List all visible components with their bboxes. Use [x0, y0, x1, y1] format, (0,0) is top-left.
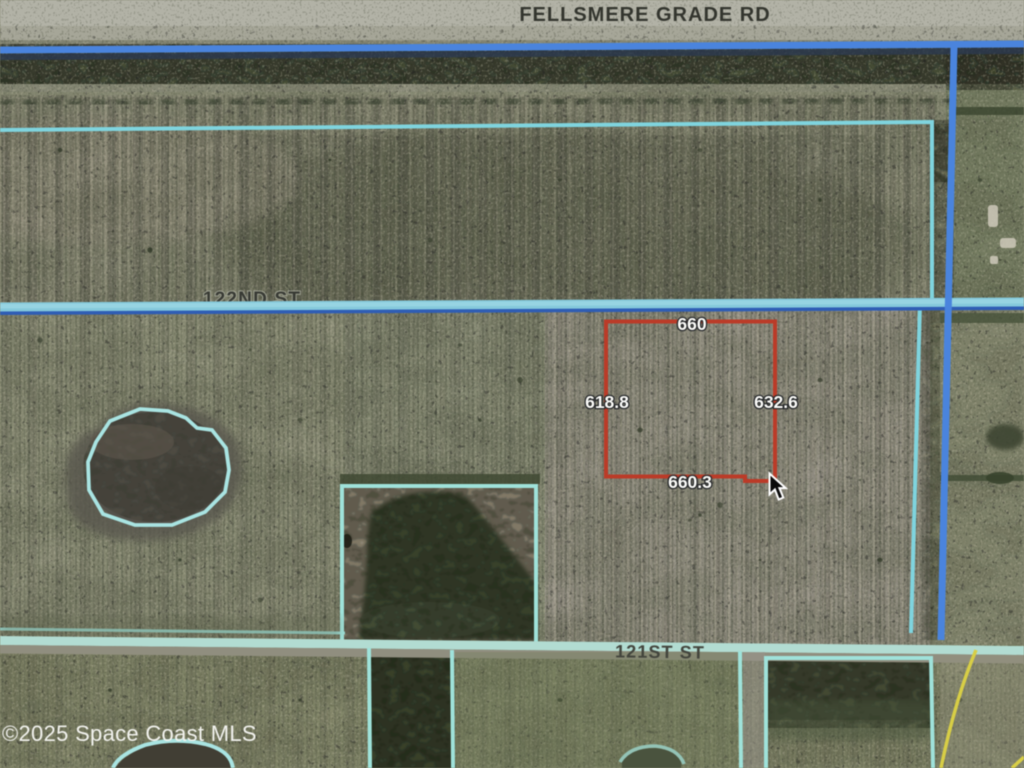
svg-text:FELLSMERE GRADE RD: FELLSMERE GRADE RD [519, 4, 770, 26]
svg-text:618.8: 618.8 [585, 392, 629, 412]
svg-text:660.3: 660.3 [668, 472, 712, 492]
svg-text:632.6: 632.6 [754, 392, 798, 412]
svg-text:121ST ST: 121ST ST [615, 641, 705, 662]
svg-text:660: 660 [677, 314, 706, 334]
svg-text:©2025 Space Coast MLS: ©2025 Space Coast MLS [2, 721, 257, 746]
